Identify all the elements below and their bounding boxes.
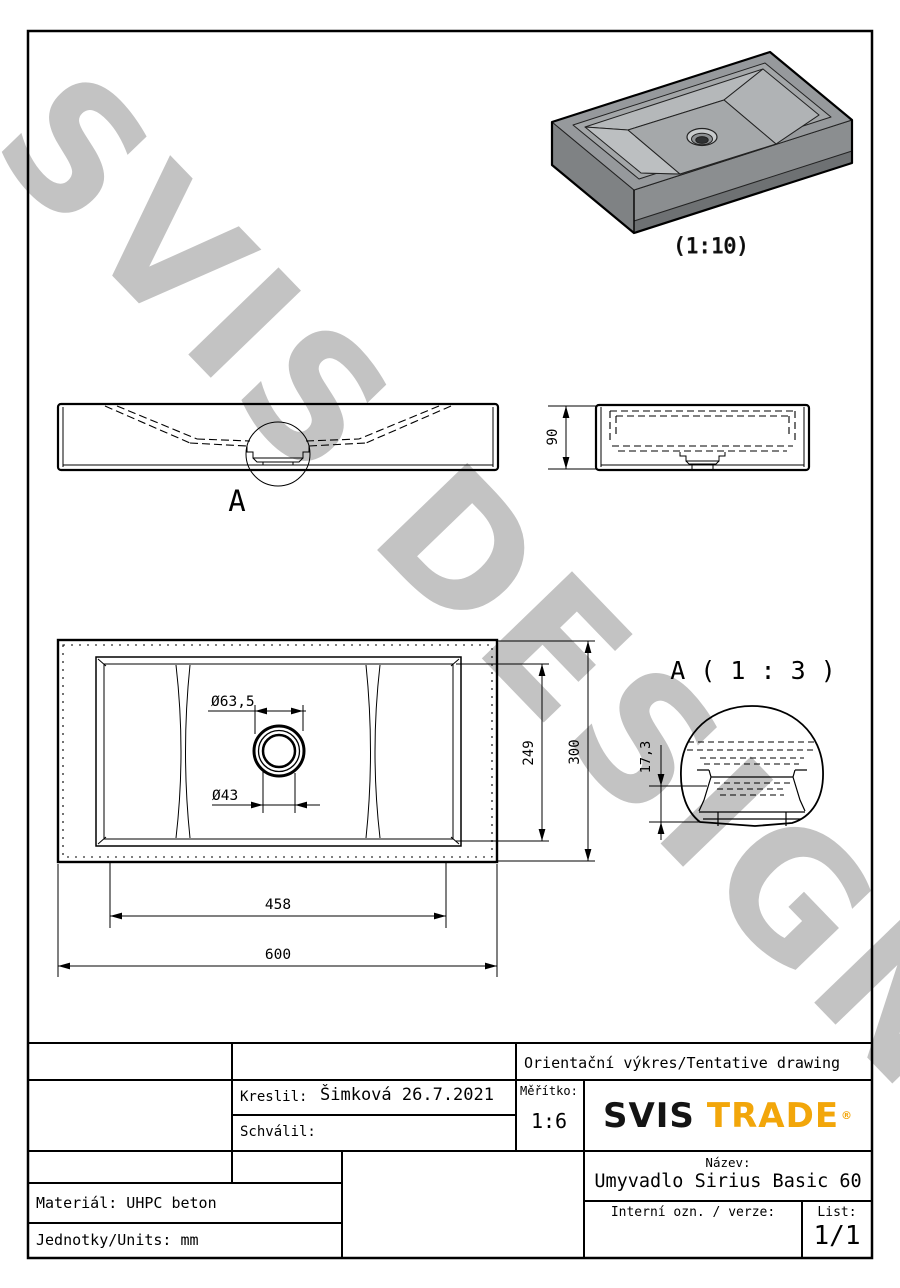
scale-value: 1:6 [516,1109,582,1133]
svis-trade-logo: SVIS TRADE ® [584,1080,872,1151]
dim-90-group: 90 [545,406,596,469]
logo-svis: SVIS [603,1096,695,1136]
internal-designation-label: Interní ozn. / verze: [584,1205,802,1220]
title-label: Název: [584,1155,872,1170]
dim-458: 458 [265,897,291,913]
dim-249-group: 249 [456,664,549,841]
tentative-drawing-note: Orientační výkres/Tentative drawing [524,1052,868,1074]
side-drain-profile [680,452,725,470]
approved-by-label: Schválil: [240,1124,316,1140]
units-note: Jednotky/Units: mm [36,1231,199,1249]
dim-drain-outer: Ø63,5 [211,694,255,710]
sheet-value: 1/1 [802,1221,872,1251]
side-hidden-lines [610,411,795,451]
dim-249: 249 [521,740,537,765]
dim-17-3-group: 17,3 [638,741,707,840]
detail-view-a: A ( 1 : 3 ) 17,3 [638,656,836,840]
drawn-by-value: Šimková 26.7.2021 [302,1085,512,1105]
logo-trade: TRADE [707,1096,839,1136]
detail-a-marker: A [228,484,245,518]
side-view: 90 [545,405,809,470]
plan-view: Ø63,5 Ø43 249 300 [58,640,595,977]
dim-458-group: 458 [110,863,446,928]
dim-300-group: 300 [497,641,595,861]
front-hidden-lines [105,406,451,446]
dim-drain-inner-group: Ø43 [212,770,320,813]
dim-600-group: 600 [58,864,497,977]
drawn-by-label: Kreslil: [240,1089,307,1105]
detail-a-circle [246,422,310,486]
dim-17-3: 17,3 [638,741,654,774]
detail-a-boundary [681,706,823,826]
logo-registered-mark: ® [841,1101,853,1131]
title-value: Umyvadlo Sirius Basic 60 [584,1171,872,1192]
plan-basin-curve-right [366,665,380,838]
plan-drain-inner [263,735,295,767]
sheet-label: List: [802,1205,872,1220]
dim-600: 600 [265,947,291,963]
front-drain-profile [247,446,309,465]
plan-basin-curve-left [176,665,190,838]
scale-label: Měřítko: [520,1084,578,1098]
drawing-sheet: SVIS DESIGN (1:10) [0,0,900,1288]
iso-scale-label: (1:10) [673,234,749,258]
plan-drain-outer [254,726,304,776]
dim-drain-inner: Ø43 [212,788,238,804]
detail-a-title: A ( 1 : 3 ) [670,656,836,685]
isometric-view: (1:10) [552,52,852,258]
front-view: A [58,404,498,518]
material-note: Materiál: UHPC beton [36,1194,217,1212]
dim-300: 300 [567,739,583,764]
dim-90: 90 [545,429,561,446]
